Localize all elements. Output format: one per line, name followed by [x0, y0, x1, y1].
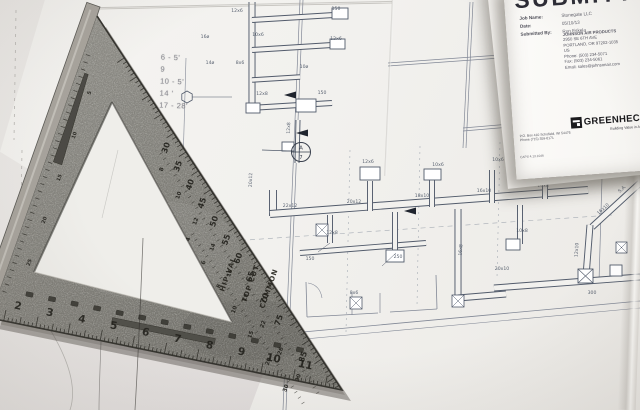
speed-square: 2345678910113035404550556065707585810121…: [0, 0, 640, 410]
hipval-tick: [301, 402, 304, 404]
metal-texture: [0, 0, 380, 410]
photo-scene: A712x615010x612x68x610ø12x815016ø14ø12x8…: [0, 0, 640, 410]
thread: [99, 342, 101, 410]
texture-dark: [0, 0, 380, 410]
hipval-tick: [294, 391, 297, 393]
hipval-tick: [298, 397, 301, 399]
